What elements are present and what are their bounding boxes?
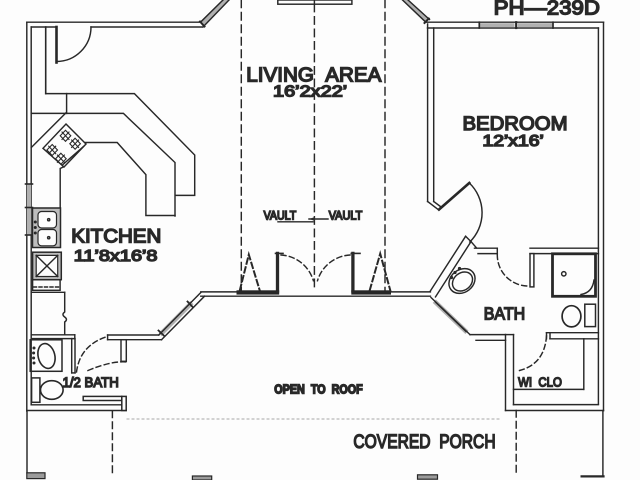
svg-text:PH—239D: PH—239D — [494, 0, 600, 19]
svg-text:COVERED PORCH: COVERED PORCH — [353, 431, 495, 453]
svg-text:BEDROOM: BEDROOM — [463, 113, 568, 135]
svg-text:OPEN TO ROOF: OPEN TO ROOF — [274, 383, 363, 397]
svg-text:12’x16’: 12’x16’ — [483, 133, 544, 150]
svg-text:VAULT: VAULT — [329, 211, 363, 223]
svg-text:1/2 BATH: 1/2 BATH — [63, 374, 119, 390]
svg-text:WI CLO: WI CLO — [518, 374, 562, 389]
svg-text:VAULT: VAULT — [264, 211, 297, 223]
svg-text:16’2x22’: 16’2x22’ — [273, 83, 347, 100]
svg-text:KITCHEN: KITCHEN — [71, 226, 161, 247]
svg-text:BATH: BATH — [484, 304, 525, 324]
svg-text:11’8x16’8: 11’8x16’8 — [74, 248, 158, 265]
